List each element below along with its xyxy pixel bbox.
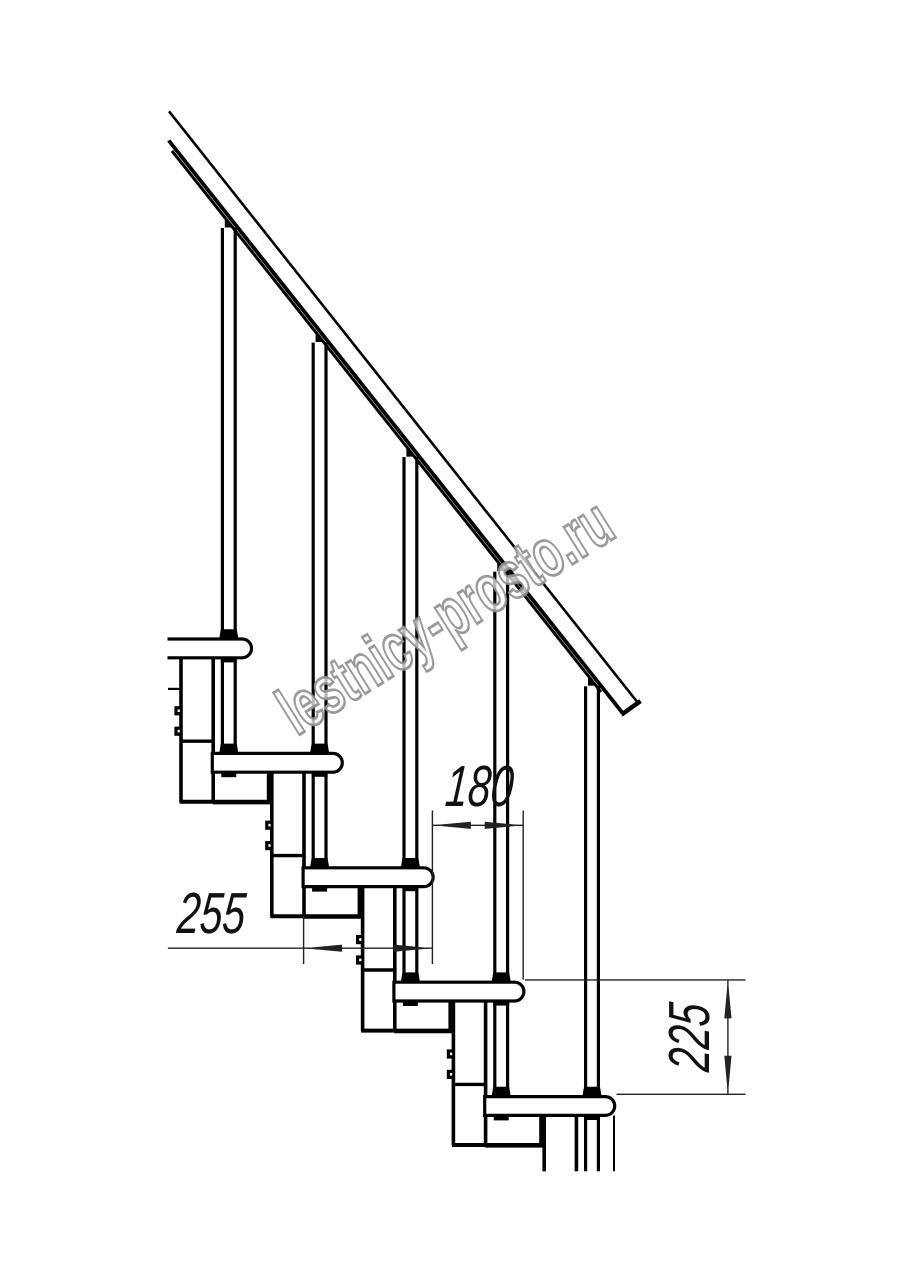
svg-text:225: 225	[657, 999, 722, 1074]
svg-text:255: 255	[174, 881, 249, 946]
svg-text:180: 180	[443, 754, 516, 819]
